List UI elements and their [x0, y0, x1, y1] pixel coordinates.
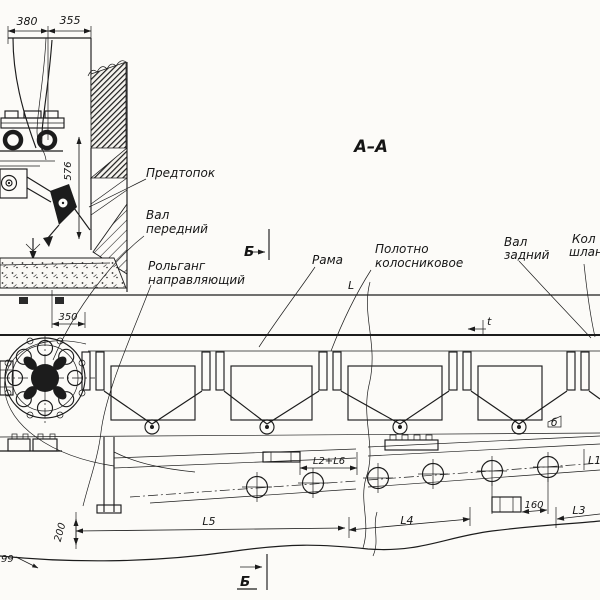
dim-L2L6-label: L2+L6: [313, 456, 345, 467]
dim-576: 576: [63, 161, 74, 180]
label-rolgang-1: Рольганг: [148, 259, 206, 273]
dim-99: 99: [1, 554, 14, 565]
paper-background: [0, 0, 600, 600]
dim-L4-label: L4: [400, 514, 413, 527]
flag-b-label: б: [551, 417, 558, 429]
dim-355: 355: [60, 14, 81, 27]
dim-L1-label: L1: [588, 454, 600, 467]
dim-L5-label: L5: [202, 515, 215, 528]
mount-block: [19, 297, 28, 304]
section-marker-b-bottom-label: Б: [240, 574, 250, 590]
label-rolgang-2: направляющий: [148, 273, 245, 287]
label-rama: Рама: [312, 253, 343, 267]
dim-t-label: t: [487, 315, 492, 328]
label-val-rear-1: Вал: [504, 235, 528, 249]
dim-L3-label: L3: [572, 504, 585, 517]
label-polotno-1: Полотно: [375, 242, 429, 256]
section-title: А–А: [352, 137, 388, 156]
dim-380: 380: [17, 15, 38, 28]
mount-block: [55, 297, 64, 304]
label-edge-cut-1: Кол: [572, 232, 596, 246]
drawing-canvas: 380 355: [0, 0, 600, 600]
dim-L: L: [348, 279, 354, 292]
section-marker-b-top-label: Б: [244, 244, 254, 260]
label-val-front-2: передний: [146, 222, 208, 236]
label-polotno-2: колосниковое: [375, 256, 463, 270]
dim-160: 160: [522, 500, 547, 512]
label-val-front-1: Вал: [146, 208, 170, 222]
technical-drawing: 380 355: [0, 0, 600, 600]
label-predtopok: Предтопок: [146, 166, 216, 180]
label-edge-cut-2: шлан: [569, 245, 600, 259]
label-val-rear-2: задний: [504, 248, 550, 262]
dim-160-label: 160: [524, 500, 543, 511]
